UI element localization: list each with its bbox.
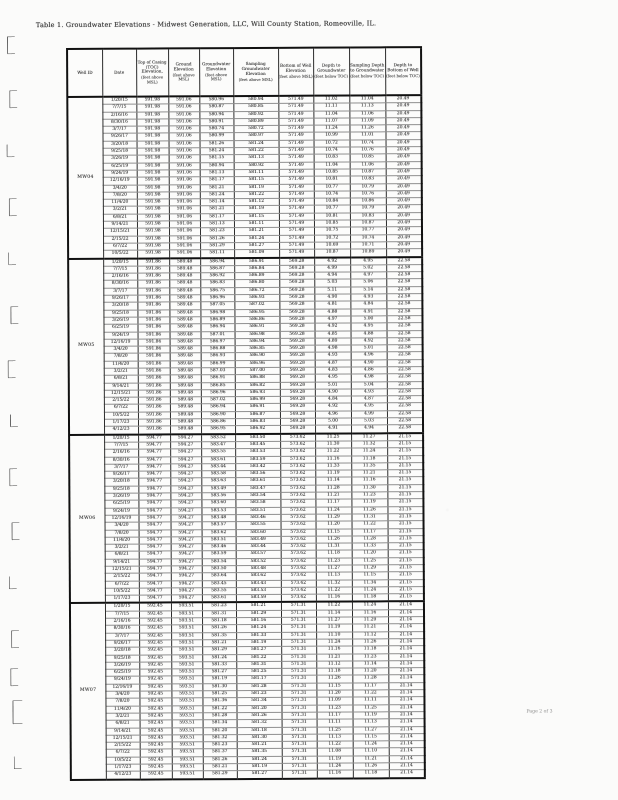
- cell-toc-elevation: 594.77: [139, 595, 171, 603]
- cell-ground-elevation: 589.48: [169, 258, 200, 266]
- column-header-date: Date: [102, 49, 136, 97]
- page-number: Page 2 of 3: [527, 709, 553, 714]
- scan-bracket-mark: [14, 756, 22, 769]
- cell-sampling-groundwater-elevation: 583.59: [236, 595, 281, 603]
- cell-groundwater-elevation: 583.61: [202, 595, 236, 603]
- cell-depth-to-bottom-of-well: 21.15: [388, 594, 424, 602]
- cell-depth-to-groundwater: 4.92: [314, 257, 350, 265]
- cell-groundwater-elevation: 580.96: [199, 96, 233, 104]
- scan-bracket-mark: [9, 576, 17, 589]
- column-header-sampling-groundwater-elevation: Sampling Groundwater Elevation(feet abov…: [233, 48, 278, 96]
- cell-date: 1/17/23: [105, 595, 139, 603]
- cell-date: 4/12/23: [104, 426, 138, 434]
- cell-sampling-depth-to-groundwater: 11.24: [352, 602, 388, 610]
- cell-well-id: MW07: [70, 603, 106, 779]
- table-row: 4/12/23592.45593.51581.29581.27571.3111.…: [71, 770, 425, 780]
- cell-ground-elevation: 594.27: [171, 595, 202, 603]
- cell-sampling-depth-to-groundwater: 4.95: [350, 257, 386, 265]
- cell-sampling-groundwater-elevation: 581.27: [237, 771, 282, 779]
- cell-date: 1/20/15: [102, 97, 136, 105]
- scan-bracket-mark: [10, 414, 18, 427]
- cell-date: 1/20/15: [104, 434, 138, 442]
- cell-bottom-of-well-elevation: 573.62: [280, 433, 315, 441]
- cell-groundwater-elevation: 581.11: [200, 250, 234, 258]
- scan-bracket-mark: [10, 306, 18, 324]
- scan-bracket-mark: [11, 630, 19, 648]
- column-header-ground-elevation: Ground Elevation(feet above MSL): [168, 48, 199, 96]
- cell-ground-elevation: 591.06: [168, 96, 199, 104]
- cell-sampling-depth-to-groundwater: 11.27: [351, 433, 387, 441]
- cell-sampling-depth-to-groundwater: 11.18: [352, 594, 388, 602]
- cell-depth-to-bottom-of-well: 20.49: [385, 95, 421, 103]
- cell-date: 4/12/23: [106, 771, 140, 779]
- cell-depth-to-bottom-of-well: 20.49: [386, 249, 422, 257]
- cell-depth-to-groundwater: 11.02: [313, 95, 349, 103]
- column-header-groundwater-elevation: Groundwater Elevation(feet above MSL): [199, 48, 233, 96]
- cell-bottom-of-well-elevation: 571.31: [282, 770, 317, 778]
- cell-bottom-of-well-elevation: 571.49: [278, 96, 313, 104]
- table-body: MW041/20/15591.98591.06580.96580.94571.4…: [67, 95, 425, 779]
- cell-toc-elevation: 591.86: [138, 426, 170, 434]
- scan-bracket-mark: [7, 36, 15, 54]
- cell-groundwater-elevation: 581.23: [202, 603, 236, 611]
- cell-toc-elevation: 592.45: [140, 771, 172, 779]
- scan-bracket-mark: [9, 90, 17, 108]
- column-header-depth-to-bottom-of-well: Depth to Bottom of Well(feet below TOC): [385, 47, 421, 95]
- scan-bracket-mark: [12, 700, 22, 724]
- cell-ground-elevation: 589.48: [170, 426, 201, 434]
- cell-depth-to-groundwater: 4.91: [315, 425, 351, 433]
- cell-depth-to-groundwater: 11.22: [316, 602, 352, 610]
- column-header-sampling-depth-to-groundwater: Sampling Depth to Groundwater(feet below…: [349, 47, 385, 95]
- cell-groundwater-elevation: 581.29: [203, 771, 237, 779]
- scan-bracket-mark: [12, 522, 20, 540]
- cell-ground-elevation: 594.27: [170, 434, 201, 442]
- cell-toc-elevation: 594.77: [138, 434, 170, 442]
- cell-ground-elevation: 593.51: [171, 603, 202, 611]
- column-header-bottom-of-well-elevation: Bottom of Well Elevation(feet above MSL): [278, 48, 313, 96]
- document-title: Table 1. Groundwater Elevations - Midwes…: [36, 19, 376, 29]
- cell-date: 1/20/15: [105, 603, 139, 611]
- cell-sampling-groundwater-elevation: 586.92: [235, 426, 280, 434]
- scan-bracket-mark: [7, 144, 15, 157]
- cell-sampling-groundwater-elevation: 583.50: [235, 434, 280, 442]
- cell-sampling-depth-to-groundwater: 10.89: [350, 249, 386, 257]
- scan-bracket-mark: [8, 252, 16, 265]
- cell-well-id: MW05: [68, 258, 104, 434]
- groundwater-elevations-table: Well IDDateTop of Casing (TOC) Elevation…: [66, 46, 426, 780]
- scan-bracket-mark: [8, 360, 16, 378]
- column-header-well-id: Well ID: [67, 49, 102, 97]
- cell-sampling-groundwater-elevation: 581.09: [234, 250, 279, 258]
- cell-sampling-depth-to-groundwater: 11.18: [353, 770, 389, 778]
- cell-groundwater-elevation: 586.95: [201, 426, 235, 434]
- scan-bracket-mark: [9, 468, 17, 486]
- cell-bottom-of-well-elevation: 569.28: [280, 426, 315, 434]
- cell-bottom-of-well-elevation: 571.31: [281, 602, 316, 610]
- cell-bottom-of-well-elevation: 573.62: [281, 594, 316, 602]
- column-header-top-of-casing-toc-elevation: Top of Casing (TOC) Elevation,(feet abov…: [136, 48, 168, 96]
- cell-depth-to-bottom-of-well: 21.14: [389, 770, 425, 778]
- cell-toc-elevation: 591.98: [137, 250, 169, 258]
- cell-sampling-depth-to-groundwater: 11.04: [349, 95, 385, 103]
- cell-depth-to-groundwater: 11.16: [316, 594, 352, 602]
- cell-depth-to-bottom-of-well: 21.14: [388, 602, 424, 610]
- cell-sampling-groundwater-elevation: 581.21: [236, 602, 281, 610]
- cell-date: 10/5/22: [103, 250, 137, 258]
- cell-toc-elevation: 591.98: [136, 96, 168, 104]
- cell-toc-elevation: 592.45: [139, 603, 171, 611]
- cell-groundwater-elevation: 586.94: [200, 258, 234, 266]
- cell-well-id: MW06: [69, 434, 105, 603]
- scan-bracket-mark: [9, 198, 17, 216]
- cell-depth-to-bottom-of-well: 22.58: [386, 257, 422, 265]
- cell-depth-to-groundwater: 11.25: [315, 433, 351, 441]
- cell-well-id: MW04: [67, 97, 103, 259]
- cell-date: 1/20/15: [103, 258, 137, 266]
- table-header: Well IDDateTop of Casing (TOC) Elevation…: [67, 47, 421, 97]
- cell-depth-to-groundwater: 11.16: [317, 770, 353, 778]
- scan-bracket-mark: [10, 668, 18, 686]
- cell-ground-elevation: 593.51: [172, 771, 203, 779]
- cell-depth-to-bottom-of-well: 21.15: [387, 433, 423, 441]
- column-header-depth-to-groundwater: Depth to Groundwater(feet below TOC): [313, 47, 349, 95]
- cell-bottom-of-well-elevation: 569.28: [279, 257, 314, 265]
- cell-sampling-depth-to-groundwater: 4.94: [351, 425, 387, 433]
- cell-depth-to-groundwater: 10.87: [314, 249, 350, 257]
- cell-sampling-groundwater-elevation: 586.91: [234, 257, 279, 265]
- cell-ground-elevation: 591.06: [169, 250, 200, 258]
- cell-groundwater-elevation: 583.52: [201, 434, 235, 442]
- cell-bottom-of-well-elevation: 571.49: [279, 249, 314, 257]
- cell-sampling-groundwater-elevation: 580.94: [233, 96, 278, 104]
- cell-depth-to-bottom-of-well: 22.58: [387, 425, 423, 433]
- scanned-page: Table 1. Groundwater Elevations - Midwes…: [0, 0, 618, 800]
- cell-toc-elevation: 591.86: [137, 258, 169, 266]
